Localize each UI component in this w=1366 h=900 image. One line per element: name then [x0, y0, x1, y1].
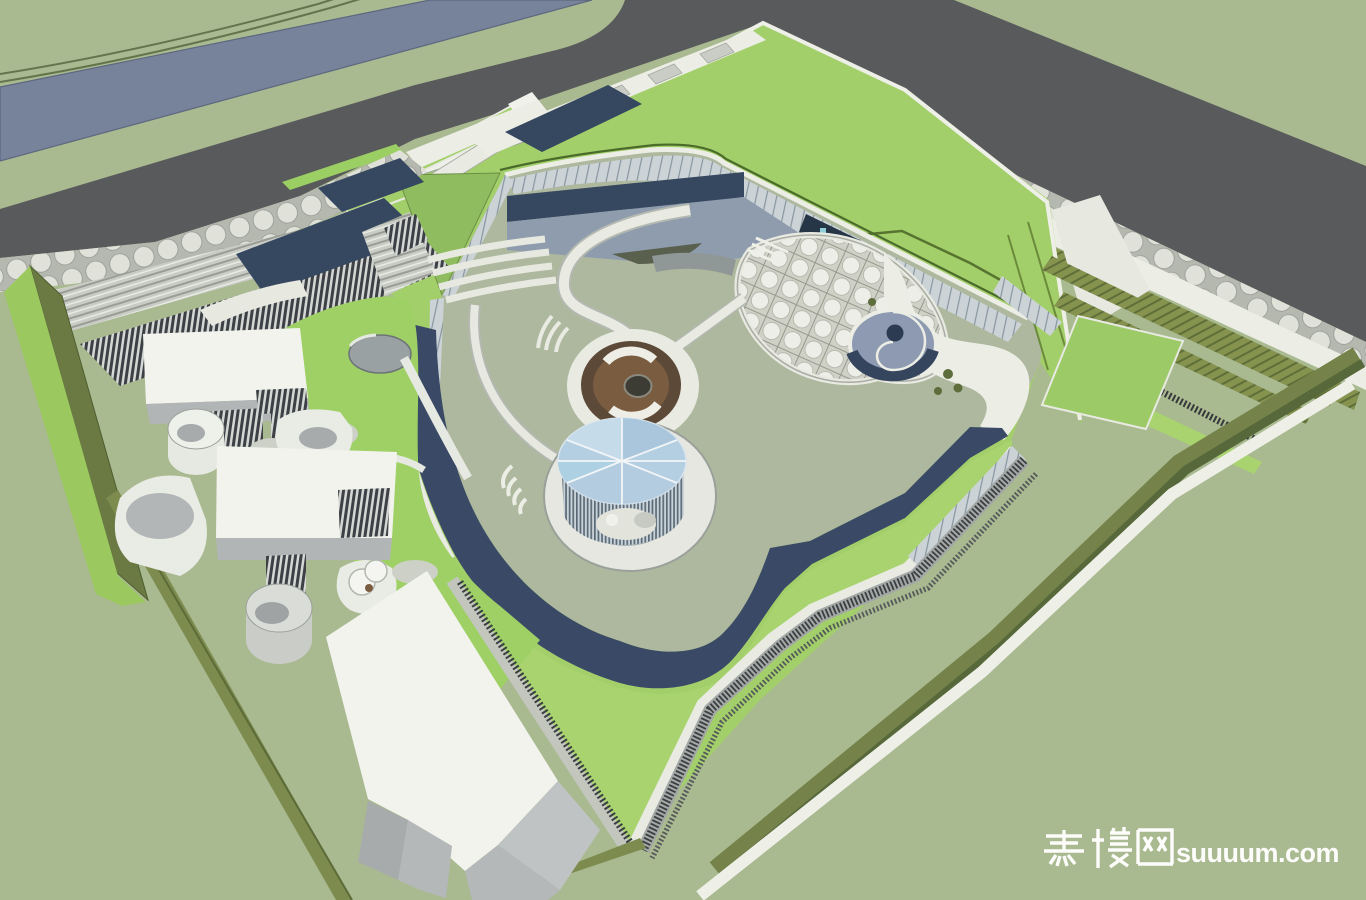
svg-text:suuuum.com: suuuum.com: [1176, 838, 1339, 868]
